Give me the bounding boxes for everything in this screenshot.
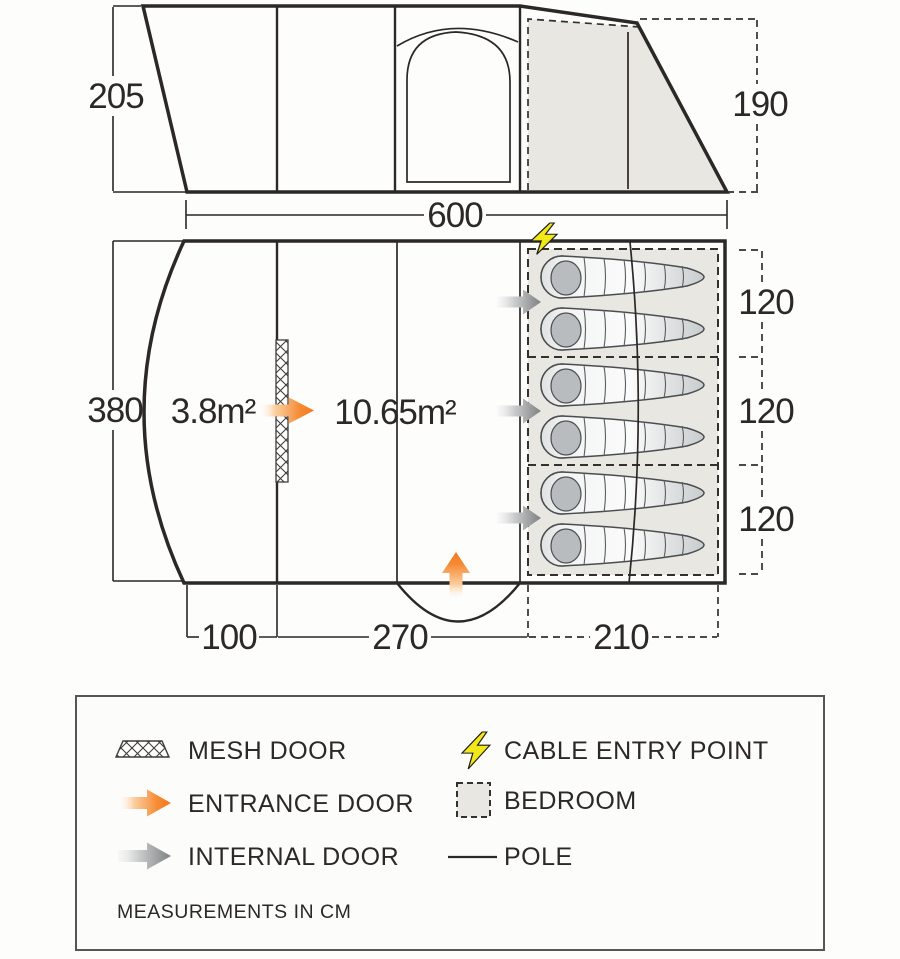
dim-190-label: 190: [732, 85, 788, 124]
dimension-bedroom-widths: 120 120 120: [738, 250, 794, 574]
legend-mesh-door-label: MESH DOOR: [188, 737, 347, 765]
dim-270-label: 270: [372, 618, 428, 657]
dimension-380: 380: [87, 241, 183, 581]
dim-205-label: 205: [88, 77, 143, 116]
legend-bedroom-label: BEDROOM: [504, 787, 637, 815]
tent-floorplan-diagram: 205 190 600: [0, 0, 900, 959]
legend-measurements-note: MEASUREMENTS IN CM: [117, 901, 351, 923]
legend-entrance-door-label: ENTRANCE DOOR: [188, 790, 414, 818]
dim-120-label-1: 120: [738, 283, 794, 322]
dimension-205: 205: [88, 6, 186, 192]
dim-120-label-3: 120: [738, 500, 794, 539]
dim-120-label-2: 120: [738, 392, 794, 431]
dimension-600: 600: [186, 196, 727, 235]
dim-380-label: 380: [87, 391, 143, 430]
mesh-door-icon: [116, 741, 169, 757]
dim-210-label: 210: [593, 618, 649, 657]
legend-internal-door-label: INTERNAL DOOR: [188, 843, 399, 871]
floor-plan: 3.8m² 10.65m²: [144, 223, 725, 622]
entrance-door-arrow-up: [442, 552, 470, 599]
dim-100-label: 100: [201, 618, 257, 657]
legend-cable-entry-label: CABLE ENTRY POINT: [504, 737, 769, 765]
legend: MESH DOOR ENTRANCE DOOR INTERNAL DOOR CA…: [76, 696, 824, 950]
side-bedroom-shaded-area: [528, 19, 726, 190]
living-area-label: 10.65m²: [334, 393, 456, 432]
legend-pole-label: POLE: [504, 843, 573, 871]
side-door-arch: [397, 28, 518, 46]
dim-600-label: 600: [427, 196, 483, 235]
side-elevation: [143, 6, 727, 192]
porch-area-label: 3.8m²: [171, 392, 256, 431]
diagram-canvas: 205 190 600: [0, 0, 900, 959]
bedroom-icon: [457, 783, 490, 817]
side-door-panel: [407, 32, 510, 182]
